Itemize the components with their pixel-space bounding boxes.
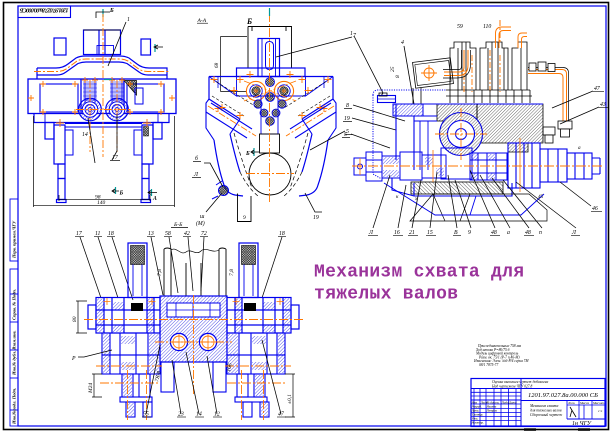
svg-text:а: а: [578, 145, 581, 151]
svg-text:Масса: Масса: [579, 401, 589, 405]
svg-text:(М): (М): [196, 220, 205, 227]
svg-text:Б: Б: [246, 17, 252, 26]
svg-text:25: 25: [390, 66, 396, 72]
svg-text:тяжелых валов: тяжелых валов: [314, 285, 458, 305]
svg-text:58: 58: [165, 231, 171, 237]
svg-text:11: 11: [95, 231, 100, 237]
svg-text:16: 16: [394, 230, 400, 236]
svg-text:Б: Б: [245, 151, 250, 157]
svg-text:21: 21: [409, 230, 415, 236]
svg-text:8: 8: [395, 75, 401, 78]
svg-text:08/1 7875-77: 08/1 7875-77: [479, 363, 498, 367]
svg-text:Перв. примен.ЧГУ: Перв. примен.ЧГУ: [12, 220, 17, 259]
svg-text:1: 1: [127, 17, 130, 23]
svg-text:19: 19: [344, 116, 350, 122]
svg-text:46: 46: [592, 205, 598, 212]
svg-text:а: а: [507, 230, 510, 236]
svg-text:Сборочный чертеж: Сборочный чертеж: [530, 412, 563, 417]
svg-text:В: В: [454, 230, 458, 236]
svg-text:7,8: 7,8: [157, 269, 163, 276]
svg-text:Н.контр.: Н.контр.: [471, 421, 485, 425]
svg-text:Инв.№подл. Подп.: Инв.№подл. Подп.: [12, 388, 17, 425]
svg-text:13: 13: [148, 231, 154, 237]
svg-text:для тяжелых валов: для тяжелых валов: [530, 409, 562, 413]
svg-text:п: п: [539, 230, 542, 236]
svg-text:18: 18: [279, 231, 285, 237]
svg-text:1:1: 1:1: [598, 409, 603, 413]
svg-text:Масшт.: Масшт.: [592, 401, 605, 405]
svg-text:1201.97.027.8а.00.000СБ: 1201.97.027.8а.00.000СБ: [19, 6, 68, 13]
svg-text:72: 72: [201, 231, 207, 237]
svg-text:8: 8: [346, 103, 349, 109]
svg-text:Справ. № Подп.: Справ. № Подп.: [12, 289, 17, 320]
svg-text:Петров: Петров: [486, 409, 498, 413]
svg-text:Лит.: Лит.: [567, 401, 575, 405]
svg-text:140: 140: [97, 199, 106, 206]
svg-text:14: 14: [82, 131, 88, 138]
svg-text:7,8: 7,8: [229, 269, 235, 276]
svg-text:80: 80: [72, 316, 78, 322]
svg-text:М24: М24: [87, 383, 94, 394]
svg-text:Б-Б: Б-Б: [173, 222, 183, 228]
svg-text:42: 42: [184, 230, 190, 237]
svg-text:5: 5: [344, 132, 347, 138]
svg-text:9: 9: [468, 230, 471, 236]
svg-text:Утв.: Утв.: [472, 417, 479, 421]
svg-text:18: 18: [108, 231, 114, 237]
svg-text:59: 59: [457, 24, 463, 30]
svg-text:68: 68: [214, 62, 220, 68]
svg-text:Б: Б: [109, 8, 114, 14]
svg-text:ш: ш: [200, 214, 205, 220]
svg-text:А: А: [152, 196, 157, 202]
svg-text:110: 110: [483, 24, 491, 30]
svg-text:Р: Р: [71, 356, 76, 362]
svg-text:19: 19: [313, 215, 319, 221]
svg-text:15: 15: [427, 230, 433, 236]
svg-text:Инв.№ дубл. Взам.инв.: Инв.№ дубл. Взам.инв.: [12, 330, 17, 376]
svg-text:1н ЧГУ: 1н ЧГУ: [572, 421, 592, 427]
svg-text:1201.97.027.8а.00.000 СБ: 1201.97.027.8а.00.000 СБ: [528, 392, 598, 399]
svg-text:1: 1: [350, 31, 353, 37]
svg-text:48: 48: [525, 229, 531, 236]
svg-text:Дата: Дата: [508, 400, 517, 404]
svg-text:±0,1: ±0,1: [287, 394, 293, 404]
svg-text:45: 45: [538, 193, 544, 200]
svg-text:Над чертежом ЧГУ 027.8: Над чертежом ЧГУ 027.8: [491, 384, 532, 388]
svg-text:9: 9: [243, 215, 246, 221]
svg-text:4: 4: [401, 39, 404, 46]
svg-text:48: 48: [491, 229, 497, 236]
svg-text:Б: Б: [119, 191, 124, 197]
svg-text:43: 43: [600, 101, 606, 108]
svg-text:Механизм схвата: Механизм схвата: [529, 404, 558, 408]
svg-text:Механизм схвата для: Механизм схвата для: [314, 263, 524, 283]
